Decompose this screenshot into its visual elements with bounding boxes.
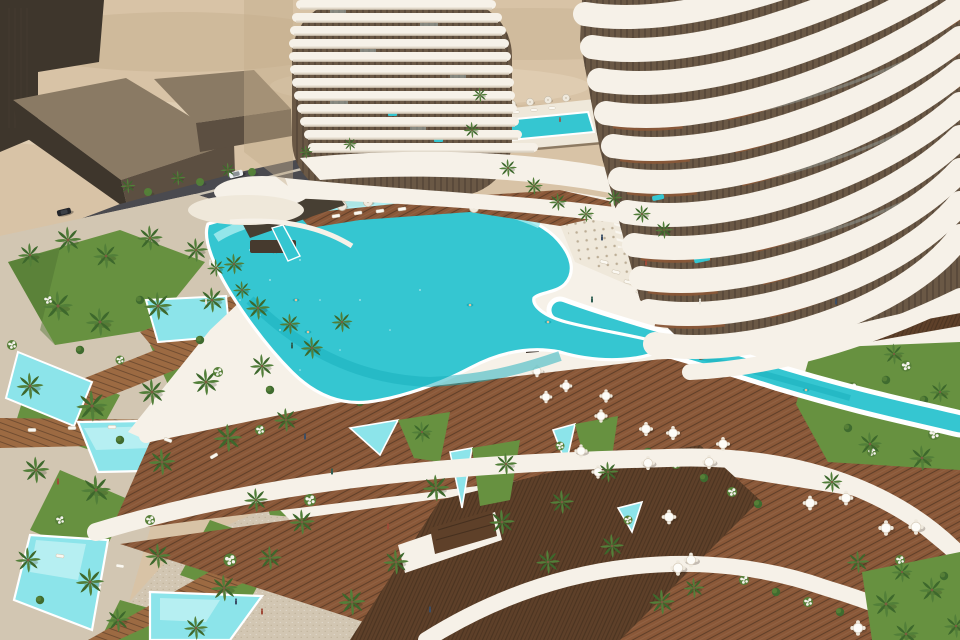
resort-render: Aerial 3D architectural rendering of a l… [0, 0, 960, 640]
render-canvas: Aerial 3D architectural rendering of a l… [0, 0, 960, 640]
